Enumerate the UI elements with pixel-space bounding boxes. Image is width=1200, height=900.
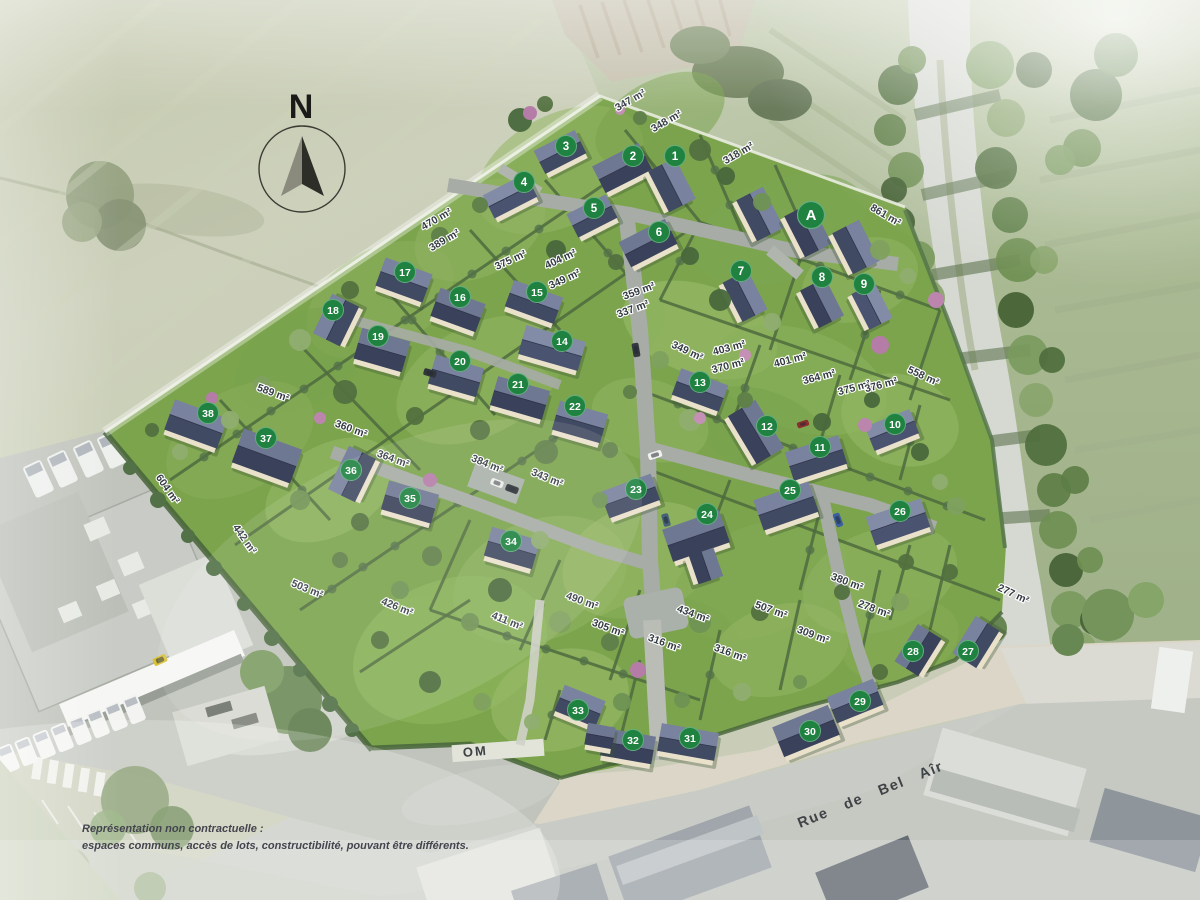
svg-text:OM: OM: [462, 743, 488, 760]
svg-text:N: N: [289, 88, 314, 126]
svg-text:espaces communs, accès de lots: espaces communs, accès de lots, construc…: [82, 840, 469, 852]
svg-text:Représentation non contractuel: Représentation non contractuelle :: [82, 823, 264, 835]
